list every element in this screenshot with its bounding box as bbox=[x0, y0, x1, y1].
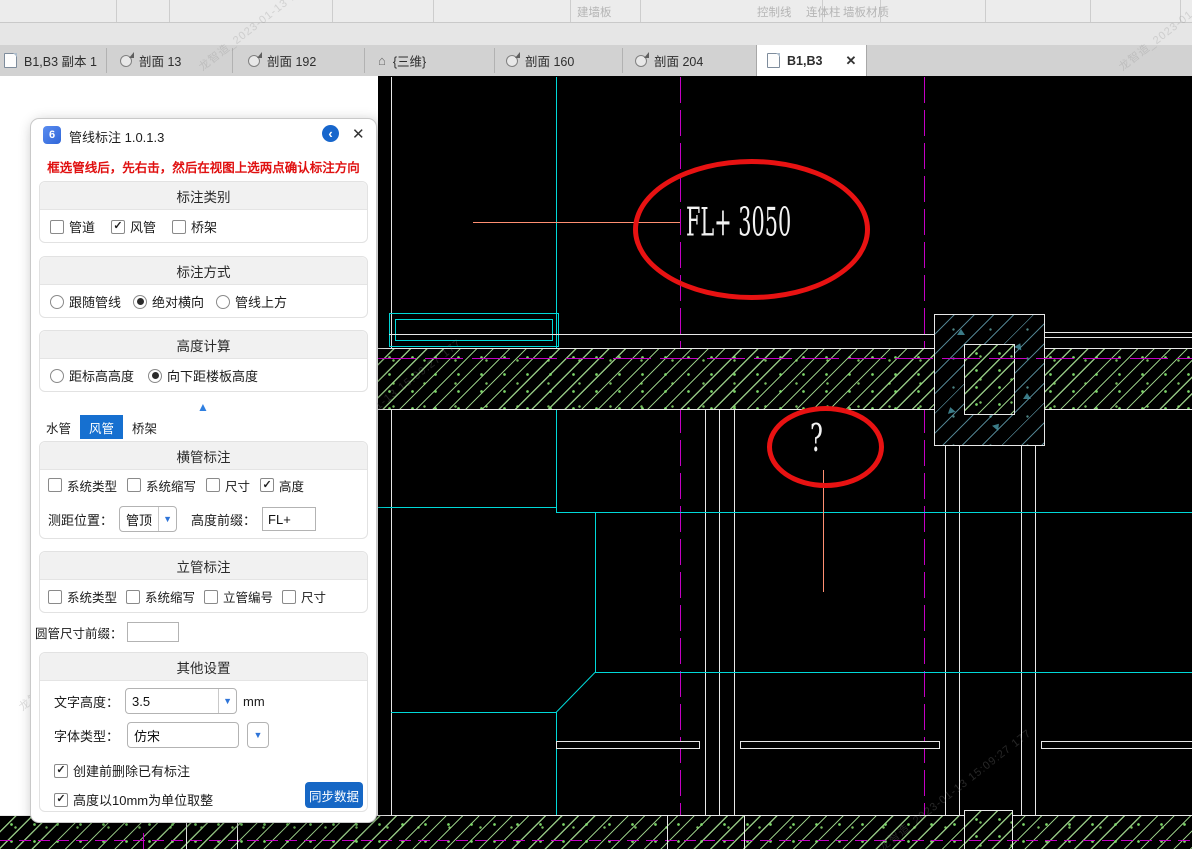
checkbox-icon[interactable] bbox=[204, 590, 218, 604]
tab-label: 剖面 204 bbox=[654, 51, 703, 70]
toolbar-divider bbox=[1180, 0, 1181, 22]
section-annotation-method: 标注方式 跟随管线 绝对横向 管线上方 bbox=[39, 256, 368, 318]
cad-line bbox=[1035, 446, 1036, 815]
toolbar-divider bbox=[1090, 0, 1091, 22]
cad-line bbox=[1045, 337, 1192, 338]
chevron-down-icon[interactable]: ▼ bbox=[158, 507, 176, 531]
measure-position-select[interactable]: 管顶 ▼ bbox=[119, 506, 177, 532]
tab-label: 剖面 13 bbox=[139, 51, 181, 70]
toolbar-divider bbox=[169, 0, 170, 22]
tab-label: B1,B3 副本 1 bbox=[24, 51, 97, 70]
cad-line bbox=[556, 77, 557, 512]
cad-line bbox=[143, 833, 144, 849]
checkbox-icon[interactable] bbox=[54, 764, 68, 778]
checkbox-pipe[interactable]: 管道 bbox=[50, 217, 95, 236]
section-view-icon bbox=[120, 55, 132, 67]
section-header: 标注方式 bbox=[40, 257, 367, 285]
pipe-type-tabs: 水管 风管 桥架 bbox=[37, 415, 166, 439]
text-height-row: 文字高度： 3.5 ▼ mm bbox=[54, 688, 265, 714]
dialog-close-icon[interactable]: ✕ bbox=[352, 125, 365, 143]
checkbox-icon[interactable] bbox=[127, 478, 141, 492]
section-view-icon bbox=[506, 55, 518, 67]
tab-section-192[interactable]: 剖面 192 bbox=[248, 45, 316, 76]
checkbox-icon[interactable] bbox=[48, 478, 62, 492]
section-view-icon bbox=[635, 55, 647, 67]
cad-line bbox=[945, 446, 946, 815]
plugin-logo-icon: 6 bbox=[43, 126, 61, 144]
toolbar-divider bbox=[570, 0, 571, 22]
measure-position-label: 测距位置： bbox=[48, 510, 113, 529]
toolbar-divider bbox=[985, 0, 986, 22]
cad-gridline-magenta bbox=[0, 840, 1192, 841]
radio-follow-pipeline[interactable]: 跟随管线 bbox=[50, 292, 121, 311]
tab-b1b3-copy1[interactable]: B1,B3 副本 1 bbox=[4, 45, 97, 76]
tab-label: B1,B3 bbox=[787, 54, 822, 68]
chevron-down-icon[interactable]: ▼ bbox=[218, 689, 236, 713]
checkbox-icon[interactable] bbox=[50, 220, 64, 234]
checkbox-height[interactable]: 高度 bbox=[260, 476, 304, 495]
cad-line bbox=[959, 446, 960, 815]
checkbox-delete-existing[interactable]: 创建前删除已有标注 bbox=[54, 761, 190, 780]
cad-line bbox=[705, 410, 706, 815]
markup-ellipse-large bbox=[633, 159, 870, 300]
checkbox-riser-system-type[interactable]: 系统类型 bbox=[48, 587, 117, 606]
cad-line bbox=[719, 410, 720, 815]
section-header: 横管标注 bbox=[40, 442, 367, 470]
radio-above-pipeline[interactable]: 管线上方 bbox=[216, 292, 287, 311]
tab-divider bbox=[622, 48, 623, 73]
checkbox-round-to-10mm[interactable]: 高度以10mm为单位取整 bbox=[54, 790, 213, 809]
cad-line bbox=[1045, 332, 1192, 333]
tab-water-pipe[interactable]: 水管 bbox=[37, 415, 80, 439]
tab-close-icon[interactable]: ✕ bbox=[845, 53, 856, 69]
radio-from-level[interactable]: 距标高高度 bbox=[50, 366, 134, 385]
section-header: 标注类别 bbox=[40, 182, 367, 210]
checkbox-icon[interactable] bbox=[111, 220, 125, 234]
toolbar-divider bbox=[116, 0, 117, 22]
pipeline-annotation-dialog: 6 管线标注 1.0.1.3 ‹ ✕ 框选管线后，先右击，然后在视图上选两点确认… bbox=[30, 118, 377, 823]
radio-icon[interactable] bbox=[216, 295, 230, 309]
checkbox-icon[interactable] bbox=[282, 590, 296, 604]
tab-label: 剖面 160 bbox=[525, 51, 574, 70]
cad-line bbox=[1021, 446, 1022, 815]
cad-line bbox=[391, 712, 556, 713]
text-height-unit: mm bbox=[243, 694, 265, 709]
checkbox-riser-size[interactable]: 尺寸 bbox=[282, 587, 326, 606]
section-riser-annotation: 立管标注 系统类型 系统缩写 立管编号 尺寸 bbox=[39, 551, 368, 613]
sync-data-button[interactable]: 同步数据 bbox=[305, 782, 363, 808]
options-bar bbox=[0, 23, 1192, 46]
tab-section-204[interactable]: 剖面 204 bbox=[635, 45, 703, 76]
cad-beam bbox=[740, 741, 940, 749]
cad-line bbox=[744, 815, 745, 849]
radio-icon[interactable] bbox=[133, 295, 147, 309]
application-window: 建墙板 墙板材质 控制线 连体柱 B1,B3 副本 1 剖面 13 剖面 192… bbox=[0, 0, 1192, 849]
cad-line bbox=[734, 410, 735, 815]
markup-ellipse-small bbox=[767, 406, 884, 488]
checkbox-icon[interactable] bbox=[206, 478, 220, 492]
font-type-label: 字体类型： bbox=[54, 726, 119, 745]
tab-3d-view[interactable]: ⌂ {三维} bbox=[378, 45, 426, 76]
radio-down-to-floor[interactable]: 向下距楼板高度 bbox=[148, 366, 258, 385]
checkbox-icon[interactable] bbox=[172, 220, 186, 234]
toolbar-divider bbox=[332, 0, 333, 22]
toolbar-button-wallpanel[interactable]: 建墙板 bbox=[577, 4, 612, 20]
tab-b1b3-active[interactable]: B1,B3 ✕ bbox=[756, 45, 867, 76]
tab-section-160[interactable]: 剖面 160 bbox=[506, 45, 574, 76]
tab-label: {三维} bbox=[393, 51, 426, 70]
round-pipe-prefix-row: 圆管尺寸前缀： bbox=[35, 622, 179, 642]
cad-leader-line bbox=[823, 470, 824, 592]
font-type-row: 字体类型： 仿宋 ▼ bbox=[54, 722, 269, 748]
tab-divider bbox=[232, 48, 233, 73]
cad-line bbox=[378, 507, 556, 508]
toolbar-divider bbox=[640, 0, 641, 22]
radio-absolute-horizontal[interactable]: 绝对横向 bbox=[133, 292, 204, 311]
section-annotation-category: 标注类别 管道 风管 桥架 bbox=[39, 181, 368, 243]
tab-label: 剖面 192 bbox=[267, 51, 316, 70]
cad-line bbox=[595, 512, 596, 673]
ribbon-toolbar: 建墙板 墙板材质 控制线 连体柱 bbox=[0, 0, 1192, 23]
section-horizontal-annotation: 横管标注 系统类型 系统缩写 尺寸 高度 测距位置： 管顶 ▼ 高度前缀： FL… bbox=[39, 441, 368, 539]
radio-icon[interactable] bbox=[50, 369, 64, 383]
cad-column-base bbox=[964, 810, 1013, 849]
tab-section-13[interactable]: 剖面 13 bbox=[120, 45, 181, 76]
checkbox-riser-system-abbr[interactable]: 系统缩写 bbox=[126, 587, 195, 606]
round-pipe-prefix-input[interactable] bbox=[127, 622, 179, 642]
section-header: 其他设置 bbox=[40, 653, 367, 681]
checkbox-system-type[interactable]: 系统类型 bbox=[48, 476, 117, 495]
plan-view-icon bbox=[4, 53, 17, 68]
tab-divider bbox=[106, 48, 107, 73]
checkbox-icon[interactable] bbox=[54, 793, 68, 807]
checkbox-duct[interactable]: 风管 bbox=[111, 217, 156, 236]
cad-duct-rect-inner bbox=[395, 319, 553, 341]
view-tab-bar: B1,B3 副本 1 剖面 13 剖面 192 ⌂ {三维} 剖面 160 剖面… bbox=[0, 45, 1192, 77]
tab-cabletray[interactable]: 桥架 bbox=[123, 415, 166, 439]
radio-icon[interactable] bbox=[50, 295, 64, 309]
cad-line bbox=[556, 512, 1192, 513]
section-header: 高度计算 bbox=[40, 331, 367, 359]
toolbar-button-controlline[interactable]: 控制线 bbox=[757, 4, 792, 20]
checkbox-icon[interactable] bbox=[126, 590, 140, 604]
checkbox-riser-number[interactable]: 立管编号 bbox=[204, 587, 273, 606]
section-other-settings: 其他设置 文字高度： 3.5 ▼ mm 字体类型： 仿宋 ▼ bbox=[39, 652, 368, 812]
tab-divider bbox=[364, 48, 365, 73]
dialog-title: 管线标注 1.0.1.3 bbox=[69, 127, 164, 146]
cad-line bbox=[391, 77, 392, 815]
collapse-arrow-icon[interactable]: ▲ bbox=[197, 400, 209, 414]
section-height-calc: 高度计算 距标高高度 向下距楼板高度 bbox=[39, 330, 368, 392]
cad-line bbox=[667, 815, 668, 849]
cad-beam bbox=[556, 741, 700, 749]
cad-beam bbox=[1041, 741, 1192, 749]
cad-gridline-magenta bbox=[378, 358, 1192, 359]
checkbox-cabletray[interactable]: 桥架 bbox=[172, 217, 217, 236]
usage-warning-text: 框选管线后，先右击，然后在视图上选两点确认标注方向 bbox=[31, 157, 376, 176]
height-prefix-input[interactable]: FL+ bbox=[262, 507, 316, 531]
cad-line bbox=[595, 672, 1192, 673]
checkbox-icon[interactable] bbox=[48, 590, 62, 604]
section-view-icon bbox=[248, 55, 260, 67]
text-height-label: 文字高度： bbox=[54, 692, 119, 711]
checkbox-icon[interactable] bbox=[260, 478, 274, 492]
chevron-down-icon: ▼ bbox=[254, 730, 263, 740]
font-type-select[interactable]: 仿宋 bbox=[127, 722, 239, 748]
toolbar-button-jointcolumn[interactable]: 连体柱 bbox=[806, 4, 841, 20]
radio-icon[interactable] bbox=[148, 369, 162, 383]
checkbox-system-abbr[interactable]: 系统缩写 bbox=[127, 476, 196, 495]
cad-gridline-magenta bbox=[924, 77, 925, 843]
toolbar-divider bbox=[433, 0, 434, 22]
cad-line bbox=[556, 712, 557, 815]
tab-divider bbox=[494, 48, 495, 73]
threed-view-icon: ⌂ bbox=[378, 54, 386, 67]
cad-column-core bbox=[964, 344, 1015, 415]
plan-view-icon bbox=[767, 53, 780, 68]
checkbox-size[interactable]: 尺寸 bbox=[206, 476, 250, 495]
collapse-back-button[interactable]: ‹ bbox=[322, 125, 339, 142]
toolbar-button-wallmaterial[interactable]: 墙板材质 bbox=[843, 4, 889, 20]
height-prefix-label: 高度前缀： bbox=[191, 510, 256, 529]
text-height-select[interactable]: 3.5 ▼ bbox=[125, 688, 237, 714]
tab-duct[interactable]: 风管 bbox=[80, 415, 123, 439]
font-type-dropdown-button[interactable]: ▼ bbox=[247, 722, 269, 748]
round-pipe-prefix-label: 圆管尺寸前缀： bbox=[35, 623, 123, 642]
section-header: 立管标注 bbox=[40, 552, 367, 580]
cad-line bbox=[389, 334, 934, 335]
